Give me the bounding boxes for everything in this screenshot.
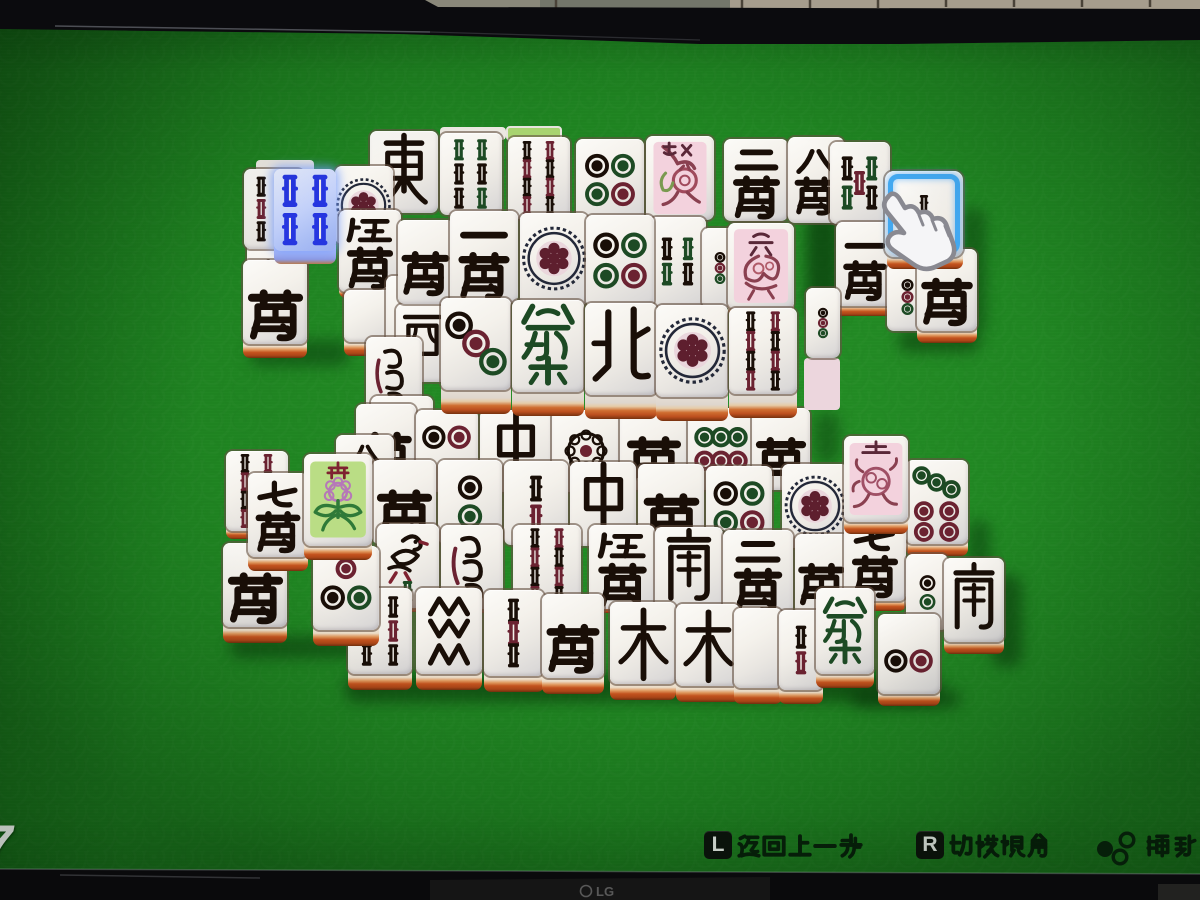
svg-text:LG: LG [596,884,614,899]
